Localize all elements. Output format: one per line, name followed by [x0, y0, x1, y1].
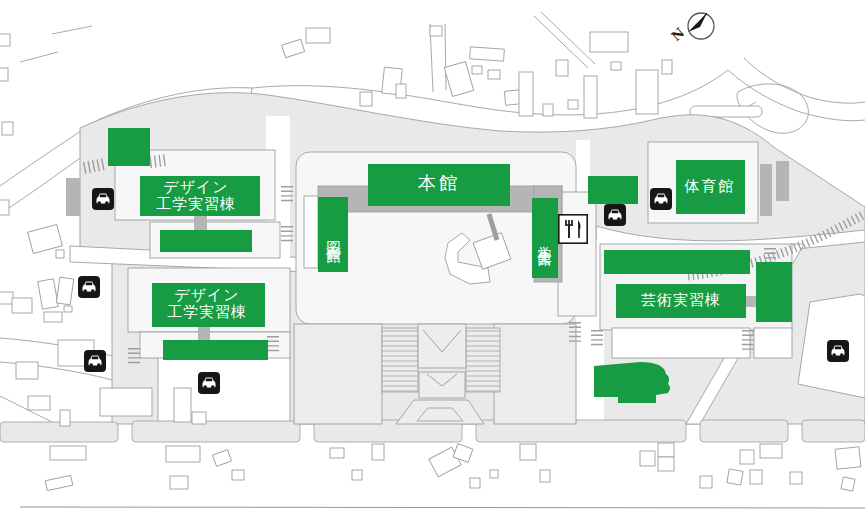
building-green-annex-gym[interactable] — [588, 176, 638, 204]
label-design-1-line2: 工学実習棟 — [133, 196, 259, 213]
car-parking-icon[interactable] — [650, 188, 672, 210]
label-design-2-line2: 工学実習棟 — [148, 304, 266, 321]
label-geijutsu: 芸術実習棟 — [616, 292, 746, 309]
label-design-kogaku-1: デザイン 工学実習棟 — [133, 179, 259, 214]
label-taiikukan: 体育館 — [674, 178, 746, 195]
building-design-annex-2[interactable] — [163, 340, 268, 360]
label-honkan: 本館 — [368, 173, 510, 194]
gray-building — [66, 178, 80, 216]
building-design-annex-1[interactable] — [160, 230, 252, 252]
car-parking-icon[interactable] — [604, 204, 626, 226]
car-parking-icon[interactable] — [198, 372, 220, 394]
building-art-east[interactable] — [756, 262, 792, 322]
car-parking-icon[interactable] — [827, 340, 849, 362]
label-gakusei-kaikan: 学生会館 — [530, 200, 560, 278]
stairs-west — [382, 328, 418, 392]
label-toshokan: 図書館 — [317, 201, 349, 269]
car-parking-icon[interactable] — [78, 276, 100, 298]
campus-map: 本館 図書館 学生会館 体育館 デザイン 工学実習棟 デザイン 工学実習棟 芸術… — [0, 0, 865, 521]
building-art-annex[interactable] — [604, 250, 750, 274]
label-design-1-line1: デザイン — [133, 179, 259, 196]
stairs-east — [466, 328, 500, 392]
north-arrow-icon — [688, 13, 714, 39]
building-green-small-nw[interactable] — [108, 128, 150, 166]
label-design-kogaku-2: デザイン 工学実習棟 — [148, 287, 266, 322]
campus-map-canvas — [0, 0, 865, 521]
label-design-2-line1: デザイン — [148, 287, 266, 304]
car-parking-icon[interactable] — [84, 350, 106, 372]
fork-knife-icon[interactable] — [559, 215, 587, 243]
car-parking-icon[interactable] — [92, 188, 114, 210]
